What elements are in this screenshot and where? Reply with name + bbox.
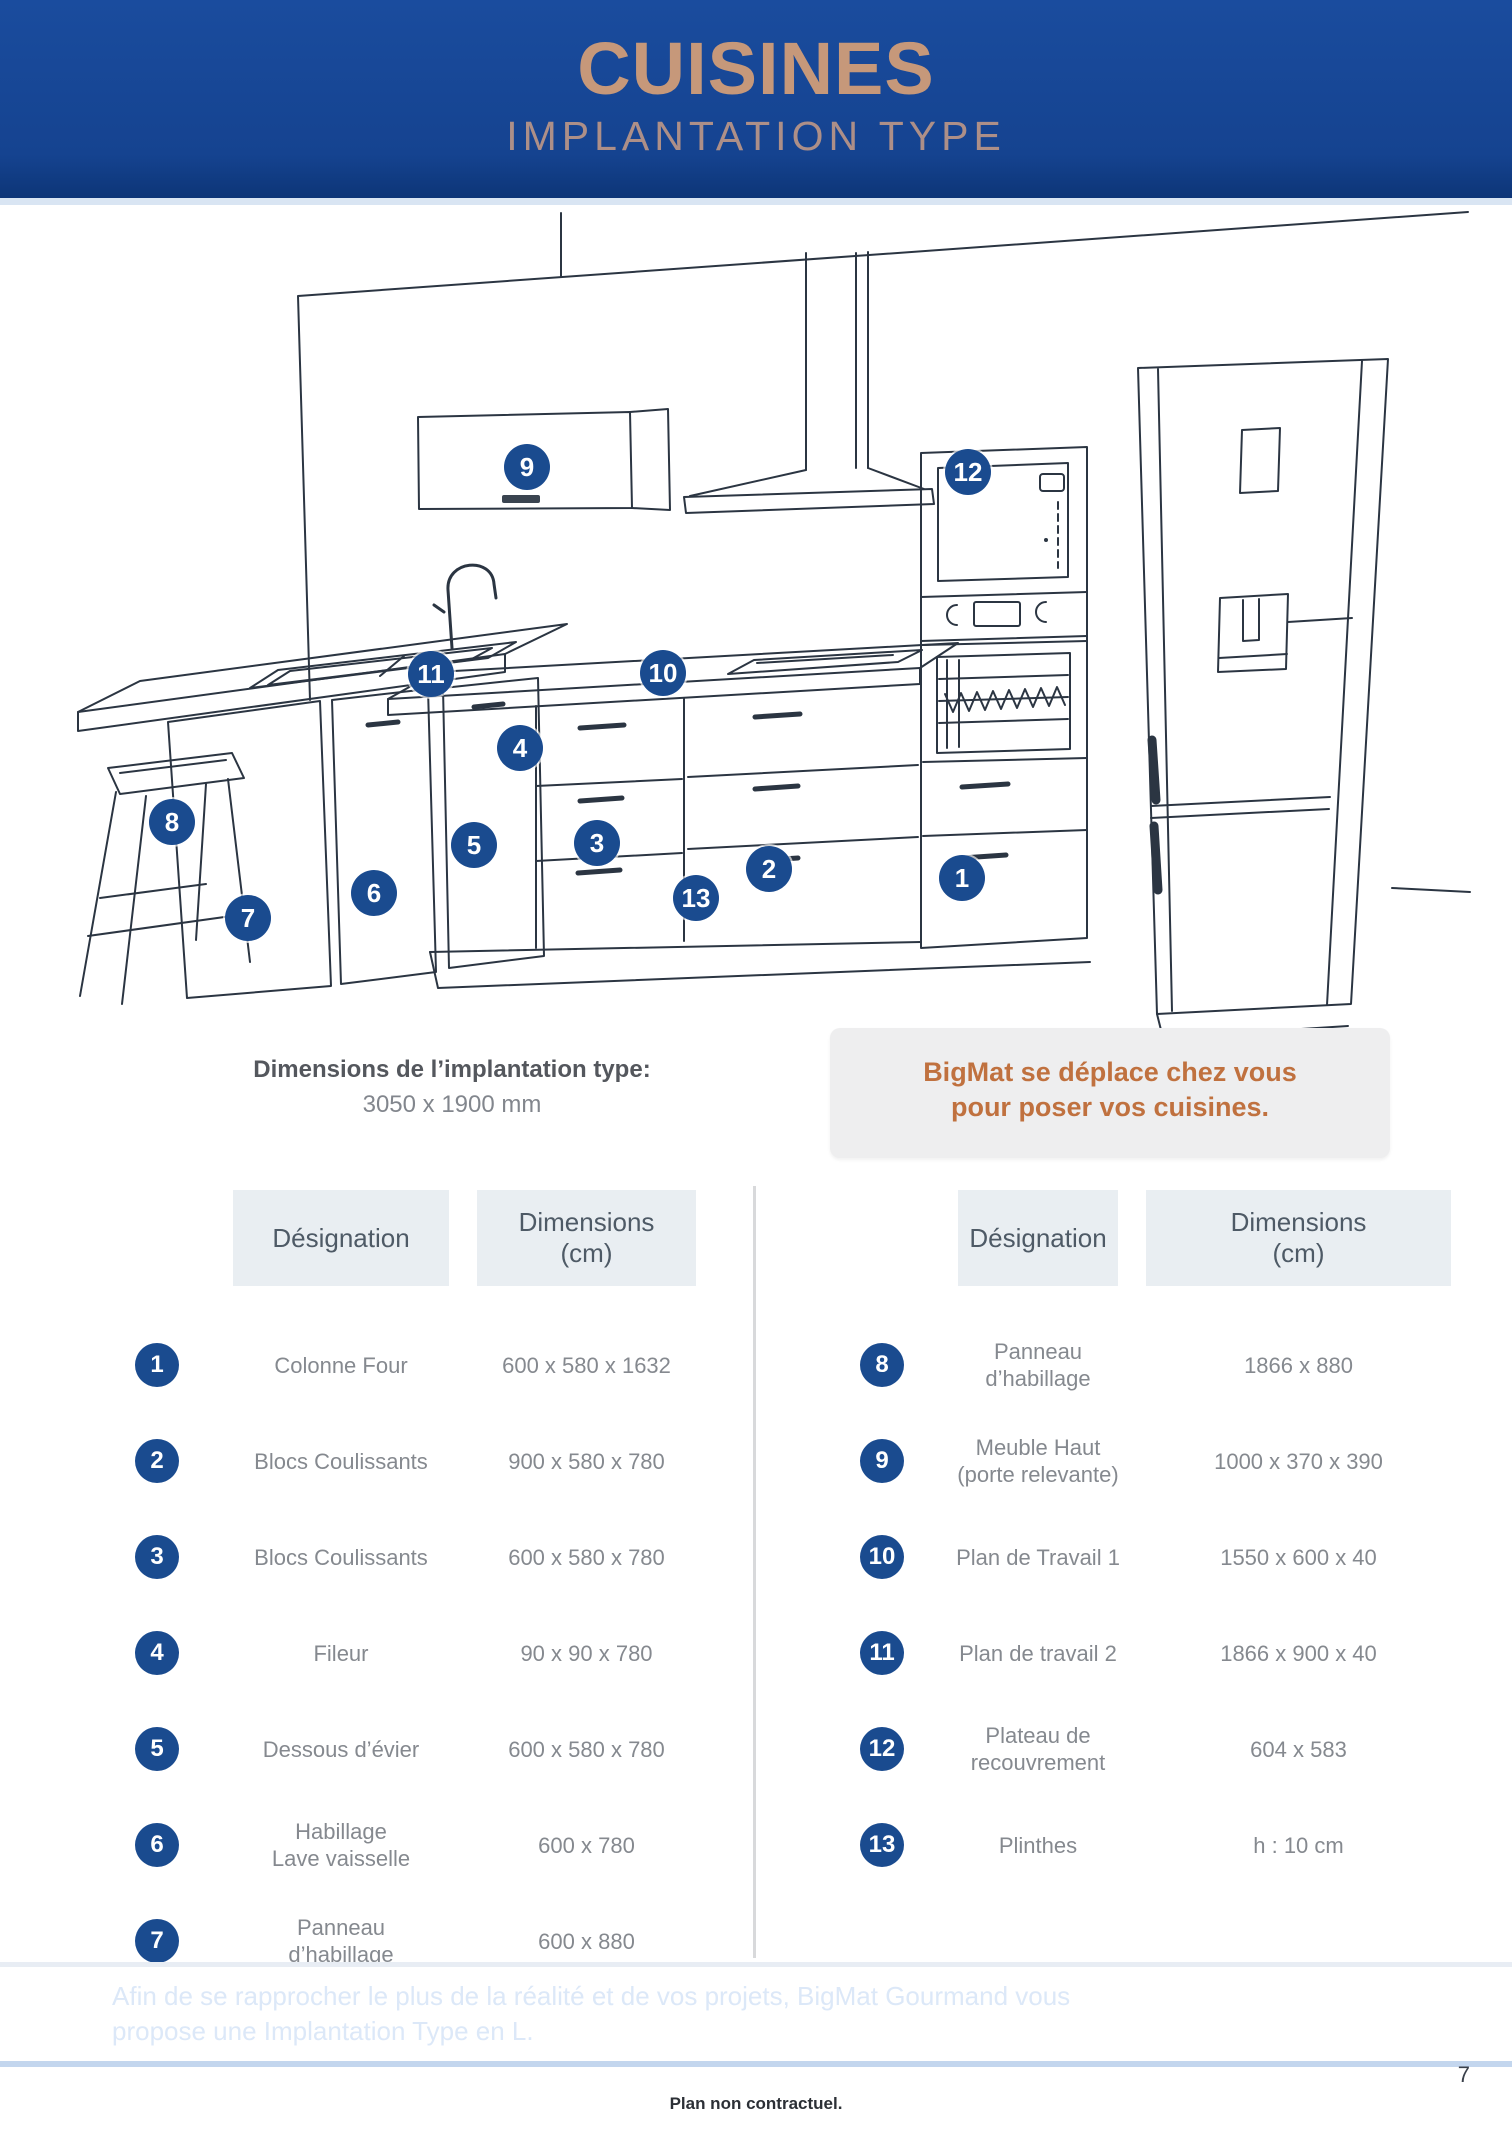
designation-cell: Plan de travail 2 <box>944 1640 1132 1667</box>
fridge-split <box>1151 797 1330 818</box>
dimensions-cell: 600 x 580 x 780 <box>463 1736 710 1763</box>
table-row: 1 Colonne Four 600 x 580 x 1632 <box>95 1317 710 1413</box>
table-row: 9 Meuble Haut (porte relevante) 1000 x 3… <box>820 1413 1465 1509</box>
callout-10: 10 <box>640 650 686 696</box>
hood-pyramid <box>690 468 924 496</box>
footnote: Plan non contractuel. <box>0 2094 1512 2114</box>
designation-cell: Fileur <box>219 1640 463 1667</box>
designation-cell: Panneau d’habillage <box>219 1914 463 1968</box>
fridge-dispenser <box>1218 594 1288 672</box>
island-door <box>443 678 544 968</box>
row-number-badge: 6 <box>135 1823 179 1867</box>
row-number-badge: 4 <box>135 1631 179 1675</box>
oven-knob <box>1036 602 1046 622</box>
callout-2: 2 <box>746 846 792 892</box>
control-strip <box>921 592 1087 641</box>
designation-cell: Blocs Coulissants <box>219 1544 463 1571</box>
oven-drawer-lines <box>923 758 1087 836</box>
callout-12: 12 <box>945 449 991 495</box>
row-number-badge: 11 <box>860 1631 904 1675</box>
dimensions-cell: 90 x 90 x 780 <box>463 1640 710 1667</box>
callout-6: 6 <box>351 870 397 916</box>
callout-13: 13 <box>673 875 719 921</box>
dimensions-header: Dimensions (cm) <box>477 1190 696 1286</box>
designation-cell: Panneau d’habillage <box>944 1338 1132 1392</box>
footer-banner: Afin de se rapprocher le plus de la réal… <box>0 1962 1512 2067</box>
floor-line <box>1392 888 1470 892</box>
dimensions-cell: 1000 x 370 x 390 <box>1132 1448 1465 1475</box>
wall-outline <box>298 212 1468 700</box>
oven-grill <box>945 687 1065 712</box>
page-number: 7 <box>1430 2062 1470 2088</box>
dimensions-cell: 600 x 580 x 780 <box>463 1544 710 1571</box>
dimensions-cell: h : 10 cm <box>1132 1832 1465 1859</box>
table-row: 13 Plinthes h : 10 cm <box>820 1797 1465 1893</box>
fridge-panel <box>1240 428 1280 493</box>
table-row: 8 Panneau d’habillage 1866 x 880 <box>820 1317 1465 1413</box>
door-handle <box>474 704 503 707</box>
callout-11: 11 <box>408 651 454 697</box>
table-row: 4 Fileur 90 x 90 x 780 <box>95 1605 710 1701</box>
row-number-badge: 9 <box>860 1439 904 1483</box>
callout-4: 4 <box>497 725 543 771</box>
designation-header: Désignation <box>233 1190 449 1286</box>
microwave-button <box>1040 474 1064 491</box>
designation-cell: Plateau de recouvrement <box>944 1722 1132 1776</box>
dimensions-label: Dimensions de l’implantation type: <box>152 1056 752 1084</box>
row-number-badge: 10 <box>860 1535 904 1579</box>
dimensions-cell: 600 x 780 <box>463 1832 710 1859</box>
row-number-badge: 3 <box>135 1535 179 1579</box>
promo-box: BigMat se déplace chez vous pour poser v… <box>830 1028 1390 1158</box>
tables-divider <box>753 1186 756 1958</box>
row-number-badge: 2 <box>135 1439 179 1483</box>
oven-display <box>974 602 1020 626</box>
row-number-badge: 5 <box>135 1727 179 1771</box>
dimensions-cell: 1866 x 900 x 40 <box>1132 1640 1465 1667</box>
designation-cell: Colonne Four <box>219 1352 463 1379</box>
designation-cell: Dessous d’évier <box>219 1736 463 1763</box>
table-row: 3 Blocs Coulissants 600 x 580 x 780 <box>95 1509 710 1605</box>
dimensions-cell: 600 x 580 x 1632 <box>463 1352 710 1379</box>
table-header: Désignation Dimensions (cm) <box>820 1190 1465 1317</box>
promo-line-2: pour poser vos cuisines. <box>830 1090 1390 1125</box>
page-subtitle: IMPLANTATION TYPE <box>0 113 1512 160</box>
fridge-outline <box>1138 359 1388 1014</box>
cabinet-dividers <box>536 698 684 948</box>
designation-cell: Blocs Coulissants <box>219 1448 463 1475</box>
drawer-handles <box>752 714 800 861</box>
faucet <box>448 565 496 648</box>
table-row: 2 Blocs Coulissants 900 x 580 x 780 <box>95 1413 710 1509</box>
callout-9: 9 <box>504 444 550 490</box>
designation-cell: Plinthes <box>944 1832 1132 1859</box>
drawer-handle <box>962 784 1008 787</box>
promo-line-1: BigMat se déplace chez vous <box>830 1055 1390 1090</box>
designation-cell: Habillage Lave vaisselle <box>219 1818 463 1872</box>
cabinet-handle <box>502 495 540 503</box>
callout-8: 8 <box>149 799 195 845</box>
row-number-badge: 7 <box>135 1919 179 1963</box>
implantation-dimensions: Dimensions de l’implantation type: 3050 … <box>152 1056 752 1119</box>
catalog-page: CUISINES IMPLANTATION TYPE <box>0 0 1512 2138</box>
kitchen-illustration: 1 2 3 4 5 6 7 8 9 10 11 12 13 <box>0 210 1512 1060</box>
stool-seat <box>108 753 244 794</box>
table-row: 5 Dessous d’évier 600 x 580 x 780 <box>95 1701 710 1797</box>
header-divider <box>0 198 1512 205</box>
callout-5: 5 <box>451 822 497 868</box>
island-door <box>332 689 436 984</box>
designation-cell: Meuble Haut (porte relevante) <box>944 1434 1132 1488</box>
dimensions-cell: 600 x 880 <box>463 1928 710 1955</box>
page-title: CUISINES <box>0 0 1512 111</box>
parts-table-left: Désignation Dimensions (cm) 1 Colonne Fo… <box>95 1190 710 1989</box>
table-row: 6 Habillage Lave vaisselle 600 x 780 <box>95 1797 710 1893</box>
parts-table-right: Désignation Dimensions (cm) 8 Panneau d’… <box>820 1190 1465 1893</box>
dimensions-cell: 604 x 583 <box>1132 1736 1465 1763</box>
oven-knob <box>947 605 957 625</box>
table-header: Désignation Dimensions (cm) <box>95 1190 710 1317</box>
table-row: 11 Plan de travail 2 1866 x 900 x 40 <box>820 1605 1465 1701</box>
row-number-badge: 8 <box>860 1343 904 1387</box>
row-number-badge: 13 <box>860 1823 904 1867</box>
page-header: CUISINES IMPLANTATION TYPE <box>0 0 1512 198</box>
dimensions-value: 3050 x 1900 mm <box>152 1091 752 1119</box>
row-number-badge: 12 <box>860 1727 904 1771</box>
table-row: 12 Plateau de recouvrement 604 x 583 <box>820 1701 1465 1797</box>
callout-3: 3 <box>574 820 620 866</box>
designation-header: Désignation <box>958 1190 1118 1286</box>
door-handle <box>368 722 398 725</box>
hood-base <box>684 489 934 513</box>
dimensions-cell: 900 x 580 x 780 <box>463 1448 710 1475</box>
stool-rails <box>88 884 246 936</box>
dimensions-cell: 1866 x 880 <box>1132 1352 1465 1379</box>
designation-cell: Plan de Travail 1 <box>944 1544 1132 1571</box>
footer-line-1: Afin de se rapprocher le plus de la réal… <box>112 1979 1512 2014</box>
fridge-handles <box>1152 740 1158 890</box>
plinth-top <box>430 942 921 952</box>
callout-1: 1 <box>939 855 985 901</box>
dimensions-cell: 1550 x 600 x 40 <box>1132 1544 1465 1571</box>
callout-7: 7 <box>225 895 271 941</box>
row-number-badge: 1 <box>135 1343 179 1387</box>
footer-line-2: propose une Implantation Type en L. <box>112 2014 1512 2049</box>
dimensions-header: Dimensions (cm) <box>1146 1190 1451 1286</box>
table-row: 10 Plan de Travail 1 1550 x 600 x 40 <box>820 1509 1465 1605</box>
